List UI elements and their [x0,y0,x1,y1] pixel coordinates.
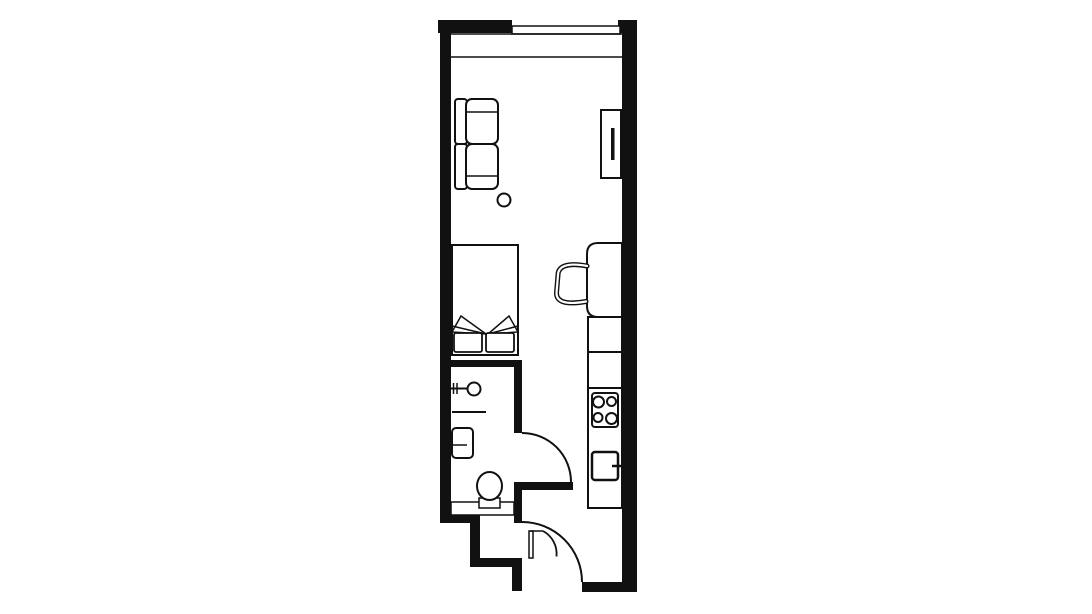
bottom-wall [582,582,637,592]
floor-plan [0,0,1092,614]
sofa-seat-upper [466,99,498,144]
burner-bottom-right [606,413,617,424]
bathroom-door-arc [522,433,571,482]
pillow-right [486,333,514,352]
sofa-seat-lower [466,144,498,189]
bathroom-right-wall-lower [514,482,522,523]
closet-door-leaf [529,531,533,558]
side-table [498,194,511,207]
wash-basin [468,383,481,396]
right-wall [622,20,637,592]
pillow-left [454,333,482,352]
floor-plan-root [438,20,637,592]
desk-chair-outer [557,265,588,303]
kitchen-cabinet-lower [588,352,622,388]
tv-screen [611,128,615,160]
burner-top-left [593,397,604,408]
bathroom-top-wall [440,360,522,367]
left-wall [440,20,451,523]
closet-door-arc [543,531,557,557]
hallway-top-wall [514,482,573,490]
bathroom-right-wall-upper [514,360,522,433]
floor-plan-canvas [0,0,1092,614]
burner-bottom-left [594,413,603,422]
burner-top-right [607,397,616,406]
desk [587,243,622,317]
kitchen-cabinet-upper [588,317,622,352]
toilet-bowl [477,472,502,500]
window [512,26,620,34]
entry-step-wall-vertical-2 [512,558,522,591]
washing-machine [452,428,473,458]
top-wall-left [438,20,512,33]
